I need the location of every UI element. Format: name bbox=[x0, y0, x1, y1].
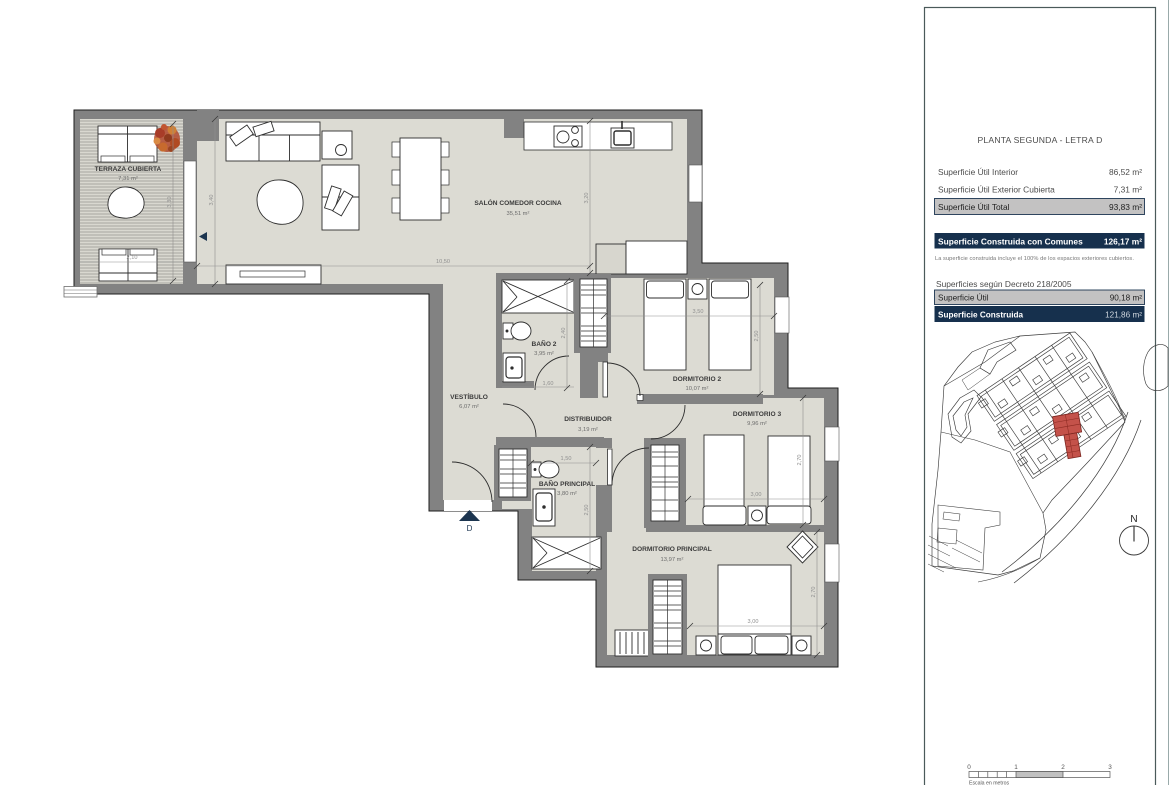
svg-text:3,50: 3,50 bbox=[693, 309, 704, 315]
svg-text:93,83 m²: 93,83 m² bbox=[1109, 202, 1142, 212]
svg-text:3,40: 3,40 bbox=[209, 195, 215, 206]
svg-text:3,30: 3,30 bbox=[167, 197, 173, 208]
svg-text:1,50: 1,50 bbox=[561, 456, 572, 462]
svg-text:Superficie Útil Total: Superficie Útil Total bbox=[938, 202, 1010, 212]
svg-text:DORMITORIO 2: DORMITORIO 2 bbox=[673, 376, 722, 383]
svg-text:Superficie Útil Interior: Superficie Útil Interior bbox=[938, 167, 1018, 177]
svg-text:86,52 m²: 86,52 m² bbox=[1109, 167, 1142, 177]
svg-text:TERRAZA CUBIERTA: TERRAZA CUBIERTA bbox=[95, 166, 162, 173]
svg-text:2,70: 2,70 bbox=[797, 455, 803, 466]
svg-text:6,07 m²: 6,07 m² bbox=[459, 404, 479, 410]
svg-text:121,86 m²: 121,86 m² bbox=[1105, 311, 1142, 320]
svg-text:DISTRIBUIDOR: DISTRIBUIDOR bbox=[564, 416, 612, 423]
svg-text:7,31 m²: 7,31 m² bbox=[118, 176, 138, 182]
svg-text:0: 0 bbox=[967, 764, 971, 771]
svg-text:Superficies según Decreto 218/: Superficies según Decreto 218/2005 bbox=[936, 279, 1072, 289]
svg-text:1,60: 1,60 bbox=[543, 381, 554, 387]
svg-text:BAÑO PRINCIPAL: BAÑO PRINCIPAL bbox=[539, 479, 595, 488]
svg-text:VESTÍBULO: VESTÍBULO bbox=[450, 392, 488, 401]
svg-text:10,07 m²: 10,07 m² bbox=[686, 386, 709, 392]
svg-text:La superficie construida inclu: La superficie construida incluye el 100%… bbox=[935, 256, 1134, 262]
svg-text:DORMITORIO 3: DORMITORIO 3 bbox=[733, 411, 782, 418]
svg-text:7,31 m²: 7,31 m² bbox=[1114, 185, 1143, 195]
svg-text:1: 1 bbox=[1014, 764, 1018, 771]
svg-text:D: D bbox=[467, 524, 473, 533]
svg-text:SALÓN COMEDOR COCINA: SALÓN COMEDOR COCINA bbox=[474, 198, 561, 207]
svg-text:2,50: 2,50 bbox=[584, 505, 590, 516]
svg-text:2: 2 bbox=[1061, 764, 1065, 771]
svg-text:PLANTA SEGUNDA - LETRA D: PLANTA SEGUNDA - LETRA D bbox=[978, 135, 1103, 145]
svg-text:Superficie Útil: Superficie Útil bbox=[938, 293, 989, 303]
svg-text:2,40: 2,40 bbox=[561, 328, 567, 339]
svg-text:Superficie Construida con Comu: Superficie Construida con Comunes bbox=[938, 237, 1083, 247]
svg-text:Superficie Útil Exterior Cubie: Superficie Útil Exterior Cubierta bbox=[938, 185, 1055, 195]
svg-text:90,18 m²: 90,18 m² bbox=[1110, 294, 1143, 303]
svg-text:BAÑO 2: BAÑO 2 bbox=[532, 339, 557, 348]
svg-text:2,10: 2,10 bbox=[127, 255, 138, 261]
svg-text:126,17 m²: 126,17 m² bbox=[1104, 237, 1142, 247]
svg-text:13,97 m²: 13,97 m² bbox=[661, 557, 684, 563]
svg-text:2,50: 2,50 bbox=[754, 331, 760, 342]
svg-text:2,70: 2,70 bbox=[811, 587, 817, 598]
svg-text:9,96 m²: 9,96 m² bbox=[747, 421, 767, 427]
svg-text:Escala en metros: Escala en metros bbox=[969, 781, 1009, 785]
svg-text:3,00: 3,00 bbox=[748, 619, 759, 625]
svg-text:3: 3 bbox=[1108, 764, 1112, 771]
svg-text:DORMITORIO PRINCIPAL: DORMITORIO PRINCIPAL bbox=[632, 546, 712, 553]
svg-text:Superficie Construida: Superficie Construida bbox=[938, 311, 1024, 320]
svg-text:10,50: 10,50 bbox=[436, 259, 450, 265]
svg-text:3,19 m²: 3,19 m² bbox=[578, 427, 598, 433]
svg-text:3,20: 3,20 bbox=[584, 193, 590, 204]
svg-text:N: N bbox=[1130, 514, 1137, 525]
svg-text:3,80 m²: 3,80 m² bbox=[557, 491, 577, 497]
svg-text:35,51 m²: 35,51 m² bbox=[507, 211, 530, 217]
svg-text:3,00: 3,00 bbox=[751, 492, 762, 498]
svg-text:3,95 m²: 3,95 m² bbox=[534, 351, 554, 357]
